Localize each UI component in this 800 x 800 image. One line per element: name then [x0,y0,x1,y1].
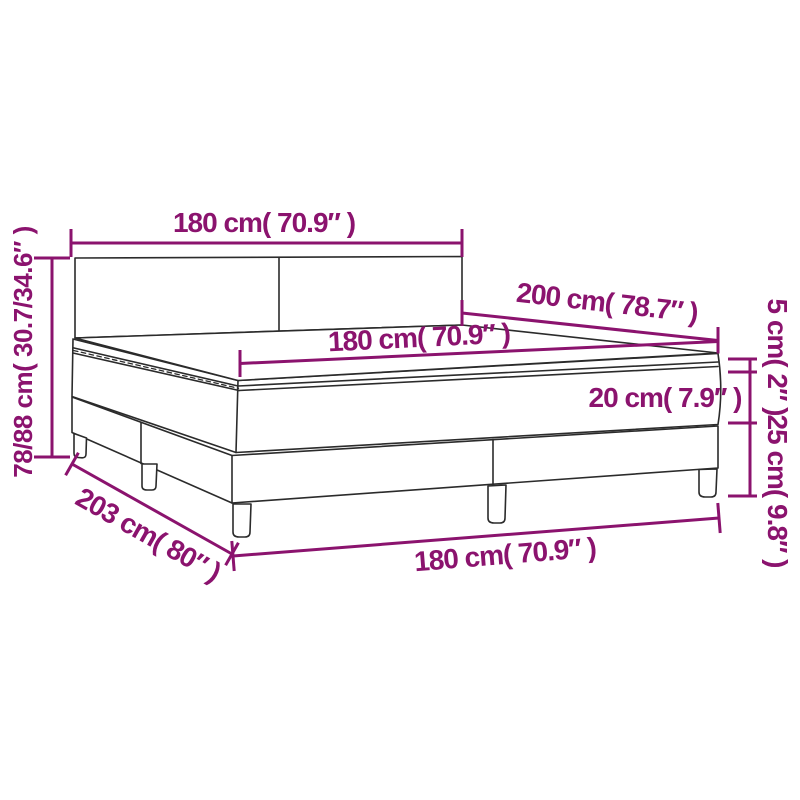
bed-leg [699,469,717,497]
bed-leg [233,504,251,537]
dim-label-base-height: 25 cm( 9.8″ ) [763,415,791,568]
dim-label-mattress-thickness: 20 cm( 7.9″ ) [589,384,742,412]
dim-right-heights-line [728,359,757,496]
bed-leg [142,464,157,490]
dim-total-height-line [34,258,70,457]
dim-label-total-height: 78/88 cm( 30.7/34.6″ ) [10,226,36,478]
dimension-diagram: 180 cm( 70.9″ ) 78/88 cm( 30.7/34.6″ ) 2… [0,0,800,800]
dim-label-topper-thickness: 5 cm( 2″ ) [763,298,791,415]
bed-leg [488,485,506,523]
dim-label-headboard-width: 180 cm( 70.9″ ) [173,209,355,237]
